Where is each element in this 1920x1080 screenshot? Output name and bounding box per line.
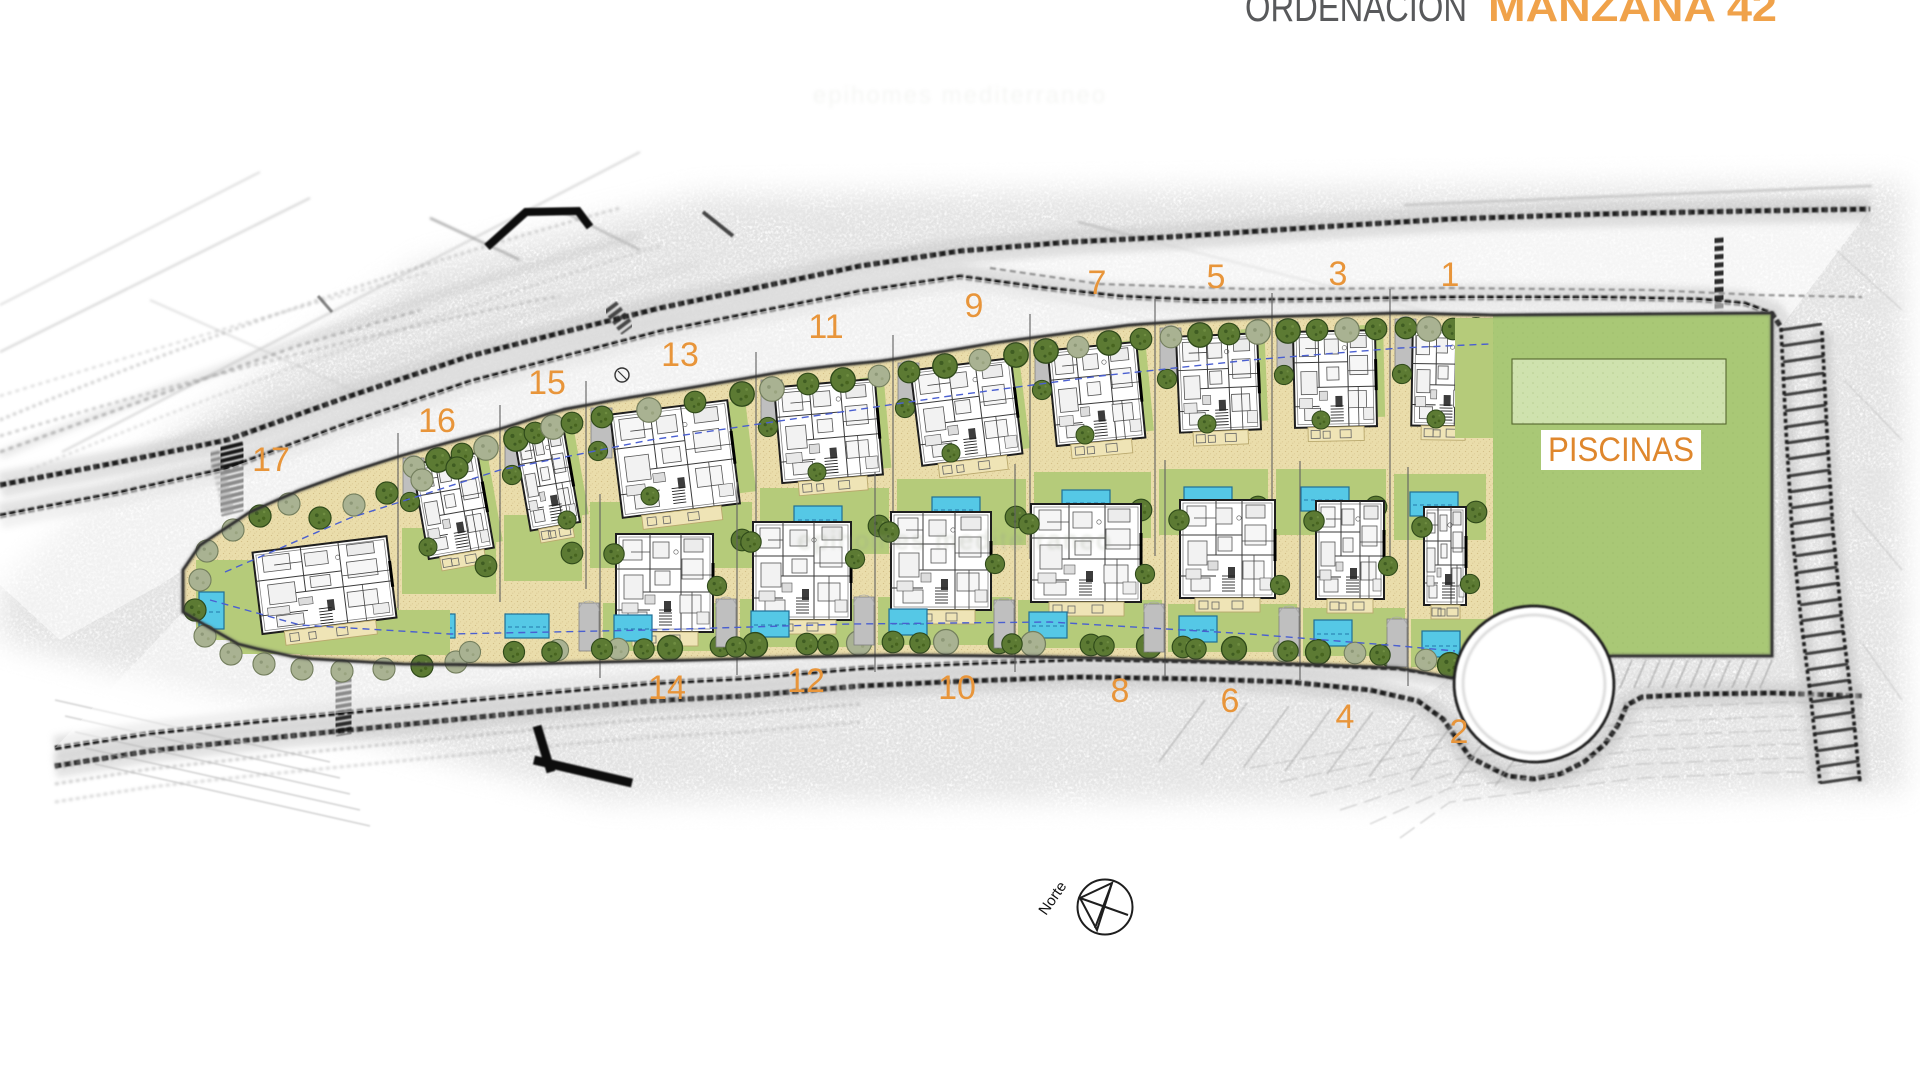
svg-text:17: 17 [252,441,290,479]
svg-text:2: 2 [1450,713,1469,751]
svg-text:14: 14 [648,669,686,707]
svg-text:12: 12 [787,662,825,700]
svg-text:3: 3 [1329,255,1348,293]
svg-text:9: 9 [965,287,984,325]
svg-text:epihomes mediterraneo: epihomes mediterraneo [813,82,1107,109]
svg-text:16: 16 [418,402,456,440]
svg-text:epihomes mediterraneo: epihomes mediterraneo [797,525,1112,555]
svg-text:MANZANA 42: MANZANA 42 [1488,0,1777,30]
svg-text:1: 1 [1441,256,1460,294]
svg-text:ORDENACIÓN: ORDENACIÓN [1245,0,1467,30]
svg-text:5: 5 [1207,258,1226,296]
svg-text:7: 7 [1088,264,1107,302]
svg-text:15: 15 [528,364,566,402]
svg-text:11: 11 [808,308,843,346]
svg-text:8: 8 [1111,672,1130,710]
svg-text:10: 10 [938,669,976,707]
svg-text:6: 6 [1221,682,1240,720]
svg-text:4: 4 [1336,698,1355,736]
svg-text:13: 13 [661,336,699,374]
svg-text:PISCINAS: PISCINAS [1548,431,1694,469]
